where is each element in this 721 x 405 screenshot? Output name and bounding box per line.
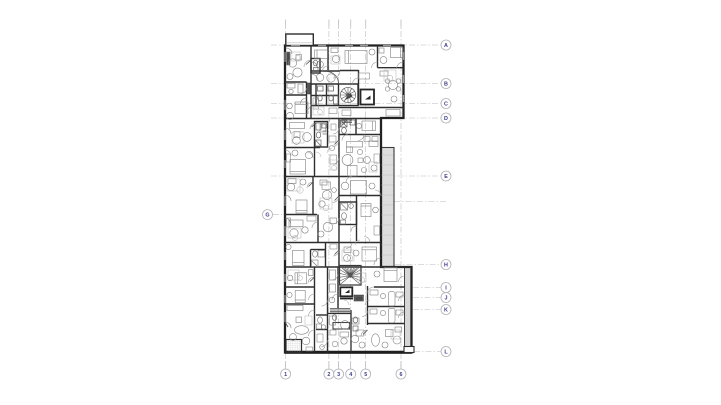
svg-text:4: 4 [349, 372, 352, 378]
svg-text:6: 6 [400, 372, 403, 378]
svg-text:D: D [444, 116, 448, 122]
svg-text:1: 1 [284, 372, 287, 378]
svg-text:3: 3 [337, 372, 340, 378]
svg-text:A: A [444, 43, 448, 49]
svg-text:E: E [444, 174, 448, 180]
svg-text:2: 2 [327, 372, 330, 378]
svg-text:J: J [445, 296, 448, 302]
svg-text:B: B [444, 82, 448, 88]
svg-text:K: K [444, 308, 448, 314]
svg-text:C: C [444, 102, 448, 108]
svg-text:5: 5 [364, 372, 367, 378]
svg-text:G: G [265, 213, 269, 219]
svg-text:H: H [444, 263, 448, 269]
